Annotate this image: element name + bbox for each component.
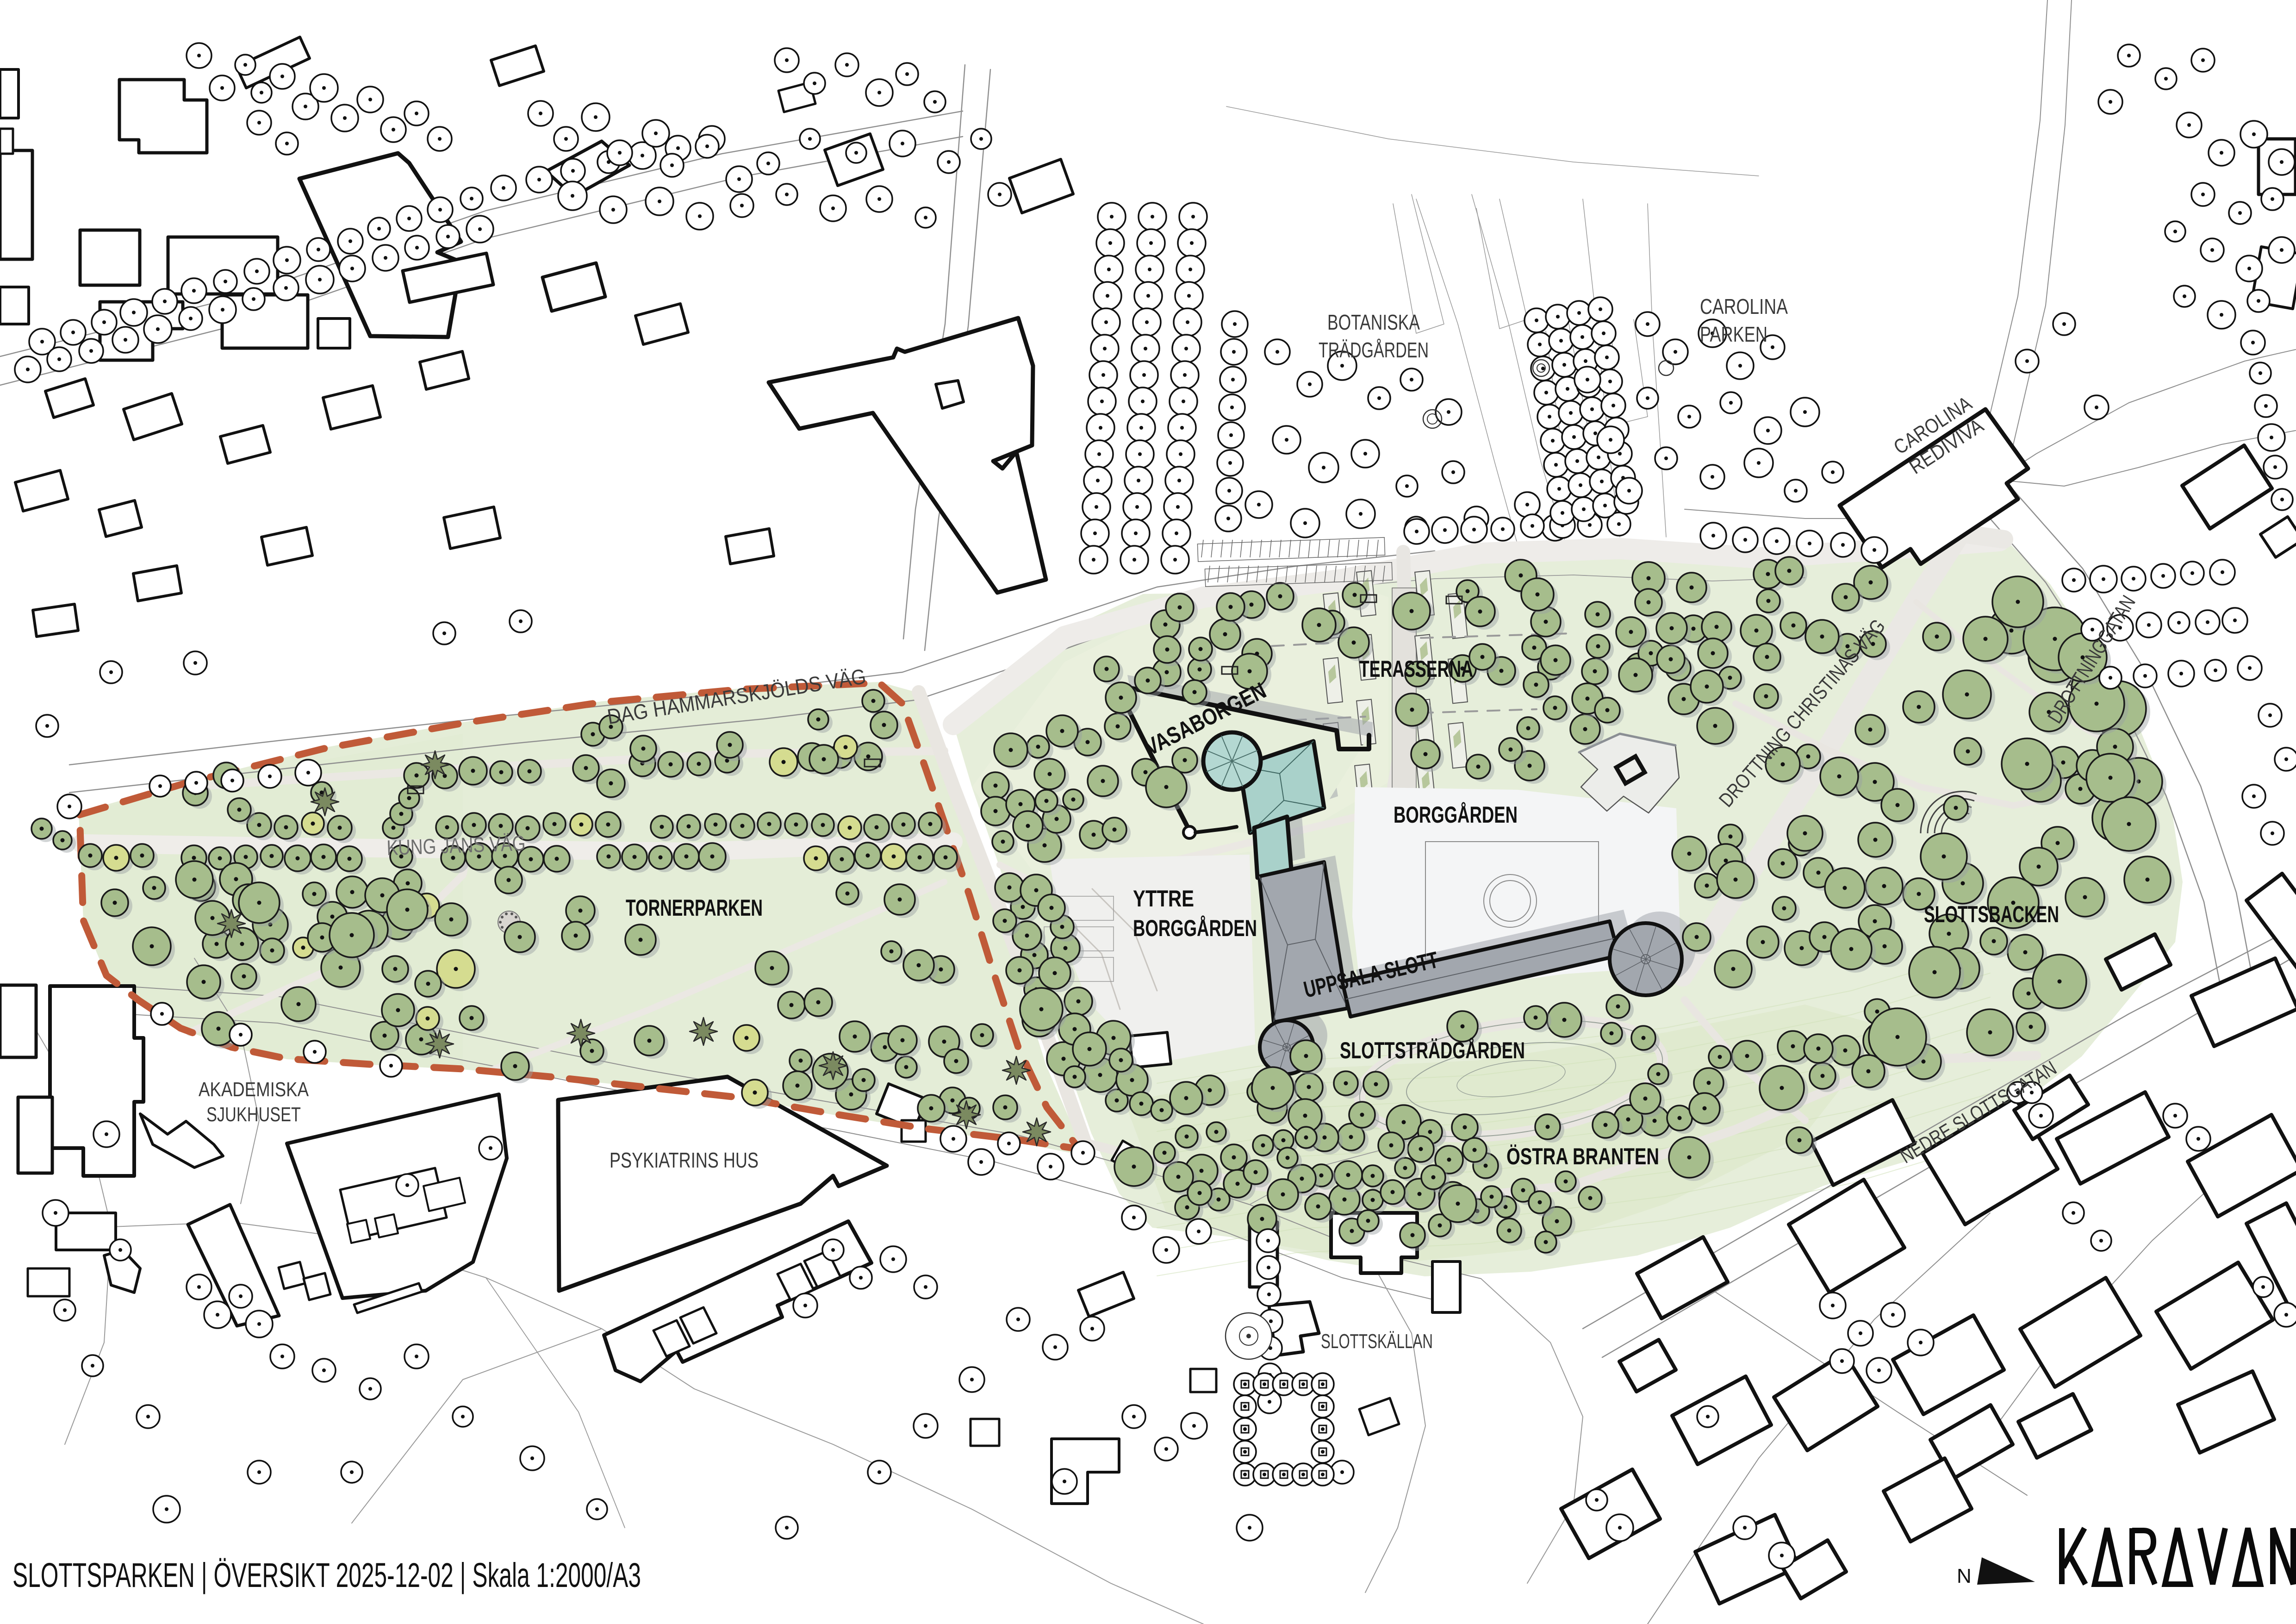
svg-text:PARKEN: PARKEN [1700, 322, 1767, 346]
svg-text:KUNG JANS VÄG: KUNG JANS VÄG [386, 831, 526, 860]
svg-text:TORNERPARKEN: TORNERPARKEN [626, 895, 763, 921]
svg-text:SLOTTSKÄLLAN: SLOTTSKÄLLAN [1321, 1330, 1433, 1353]
svg-text:BOTANISKA: BOTANISKA [1327, 310, 1420, 334]
svg-text:PSYKIATRINS HUS: PSYKIATRINS HUS [610, 1148, 759, 1172]
svg-text:TERASSERNA: TERASSERNA [1359, 656, 1473, 682]
svg-text:SJUKHUSET: SJUKHUSET [206, 1103, 301, 1126]
svg-text:SLOTTSPARKEN | ÖVERSIKT 2025-1: SLOTTSPARKEN | ÖVERSIKT 2025-12-02 | Ska… [12, 1556, 641, 1594]
svg-text:SLOTTSTRÄDGÅRDEN: SLOTTSTRÄDGÅRDEN [1340, 1037, 1525, 1063]
svg-text:SLOTTSBACKEN: SLOTTSBACKEN [1924, 901, 2059, 927]
svg-text:BORGGÅRDEN: BORGGÅRDEN [1394, 802, 1518, 828]
svg-text:ÖSTRA BRANTEN: ÖSTRA BRANTEN [1506, 1143, 1659, 1169]
svg-text:BORGGÅRDEN: BORGGÅRDEN [1133, 915, 1257, 941]
svg-text:TRÄDGÅRDEN: TRÄDGÅRDEN [1319, 338, 1429, 362]
svg-text:CAROLINA: CAROLINA [1700, 294, 1788, 319]
svg-text:YTTRE: YTTRE [1133, 886, 1194, 912]
svg-text:N: N [1957, 1565, 1972, 1587]
svg-text:AKADEMISKA: AKADEMISKA [199, 1078, 309, 1101]
